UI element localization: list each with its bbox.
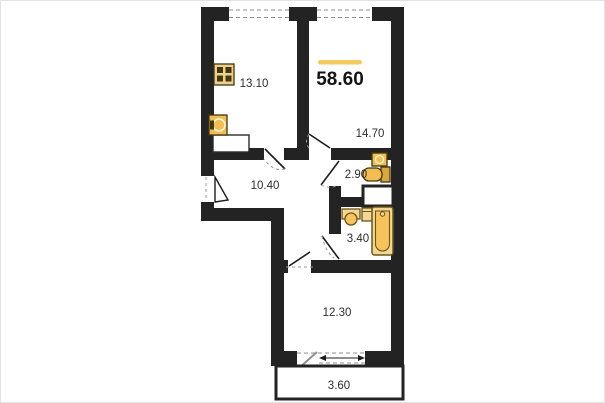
floor-plan: 58.60 13.10 14.70 10.40 2.90 3.40 12.30 … [0,0,605,403]
wall-segment [201,7,214,176]
room-label-wc: 2.90 [345,169,367,181]
wall-segment [365,351,404,366]
bathtub-icon [372,207,393,255]
room-label-kitchen: 13.10 [240,78,269,90]
kitchen-door-arc [264,159,285,170]
living-door-leaf [309,134,330,148]
wall-segment [329,186,341,234]
floor-plan-drawing: 58.60 13.10 14.70 10.40 2.90 3.40 12.30 … [1,1,605,403]
room-label-hallway: 10.40 [251,180,280,192]
total-area-label: 58.60 [316,69,364,90]
arrow-right-icon [358,355,365,361]
kitchen-counter [213,135,249,152]
arrow-left-icon [319,355,326,361]
total-area-underline [318,60,362,65]
stove-icon [214,64,234,85]
room-label-bathroom: 3.40 [347,233,369,245]
room-label-balcony: 3.60 [328,380,350,392]
wall-segment [271,208,284,366]
ventilation-shaft [363,186,393,206]
wall-segment [271,351,297,366]
labels: 58.60 13.10 14.70 10.40 2.90 3.40 12.30 … [240,60,385,392]
bath-sink-icon [342,209,360,225]
wall-segment [311,260,404,273]
wc-door-leaf [321,161,339,185]
wall-segment [297,20,309,148]
bathroom-door-leaf [322,236,339,259]
room-label-bedroom: 12.30 [323,307,352,319]
wall-segment [289,7,317,21]
wc-sink-icon [372,153,387,166]
bedroom-door-leaf [289,252,310,266]
kitchen-sink-icon [209,115,227,135]
kitchen-door-leaf [265,149,285,169]
entrance-door-leaf [215,177,228,202]
wall-segment [271,260,288,273]
wall-segment [284,148,309,160]
room-label-living: 14.70 [356,128,385,140]
